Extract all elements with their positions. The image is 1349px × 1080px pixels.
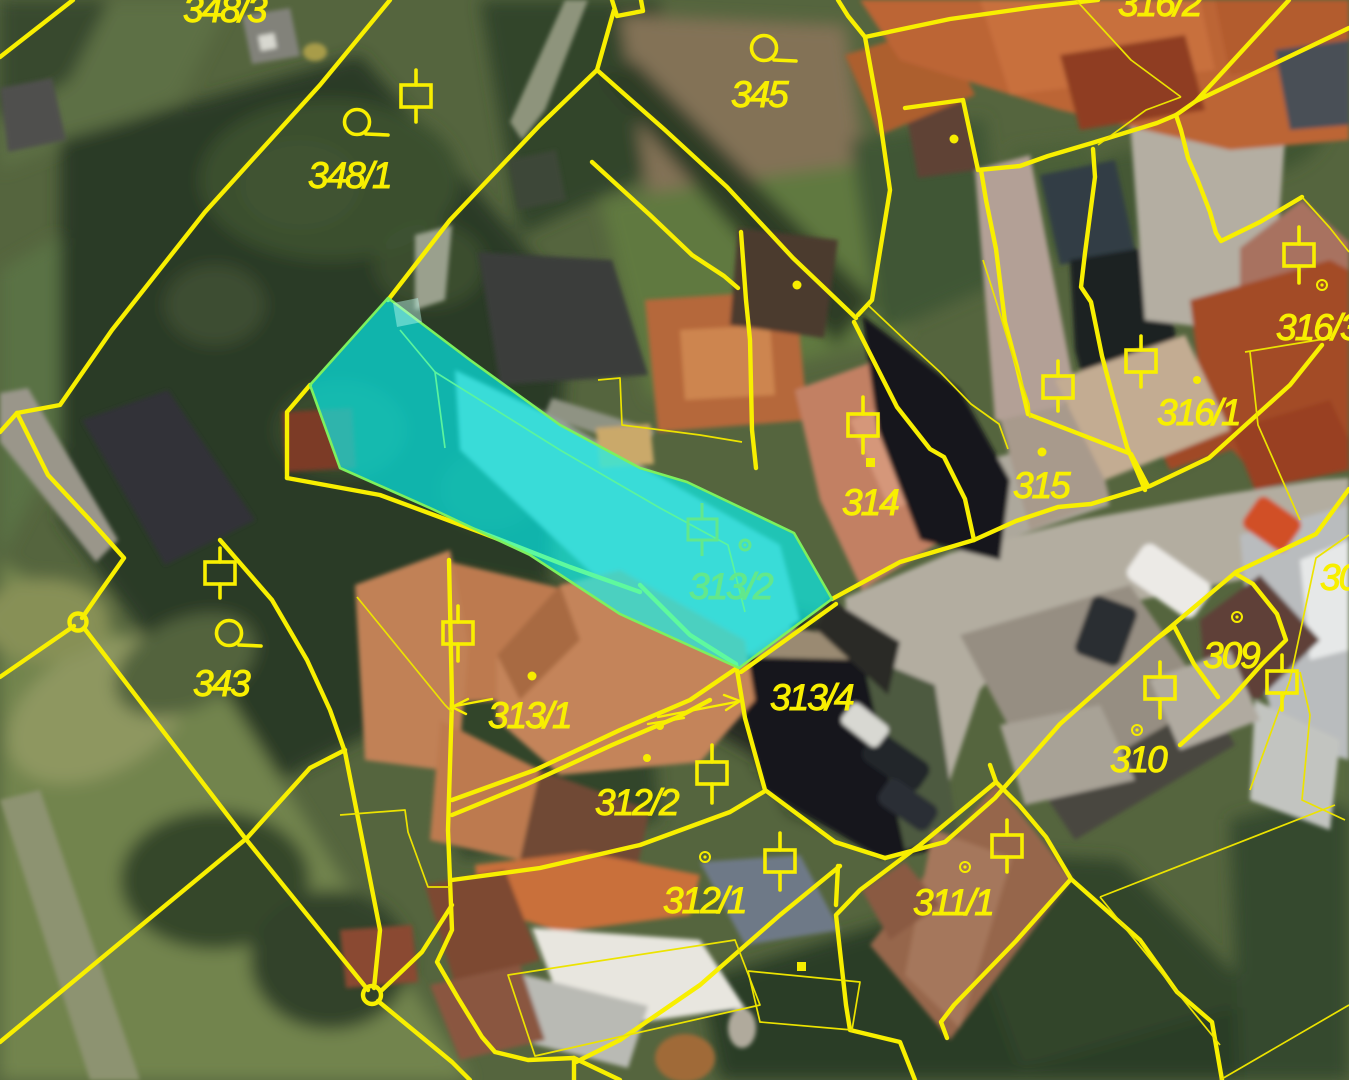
svg-text:311/1: 311/1 (913, 882, 993, 923)
svg-text:312/1: 312/1 (663, 880, 746, 921)
svg-text:348/1: 348/1 (308, 155, 391, 196)
svg-text:348/3: 348/3 (183, 0, 268, 30)
svg-text:312/2: 312/2 (595, 782, 680, 823)
svg-text:313/1: 313/1 (488, 695, 571, 736)
svg-text:316/2: 316/2 (1118, 0, 1203, 24)
svg-text:30: 30 (1320, 557, 1349, 598)
svg-text:310: 310 (1110, 739, 1168, 780)
svg-text:313/4: 313/4 (770, 677, 854, 718)
svg-text:315: 315 (1013, 465, 1071, 506)
svg-text:309: 309 (1203, 635, 1260, 676)
svg-text:316/3: 316/3 (1276, 307, 1349, 348)
svg-text:314: 314 (842, 482, 899, 523)
svg-text:343: 343 (193, 663, 251, 704)
svg-text:313/2: 313/2 (689, 566, 774, 607)
svg-text:316/1: 316/1 (1157, 392, 1240, 433)
svg-text:345: 345 (731, 74, 789, 115)
